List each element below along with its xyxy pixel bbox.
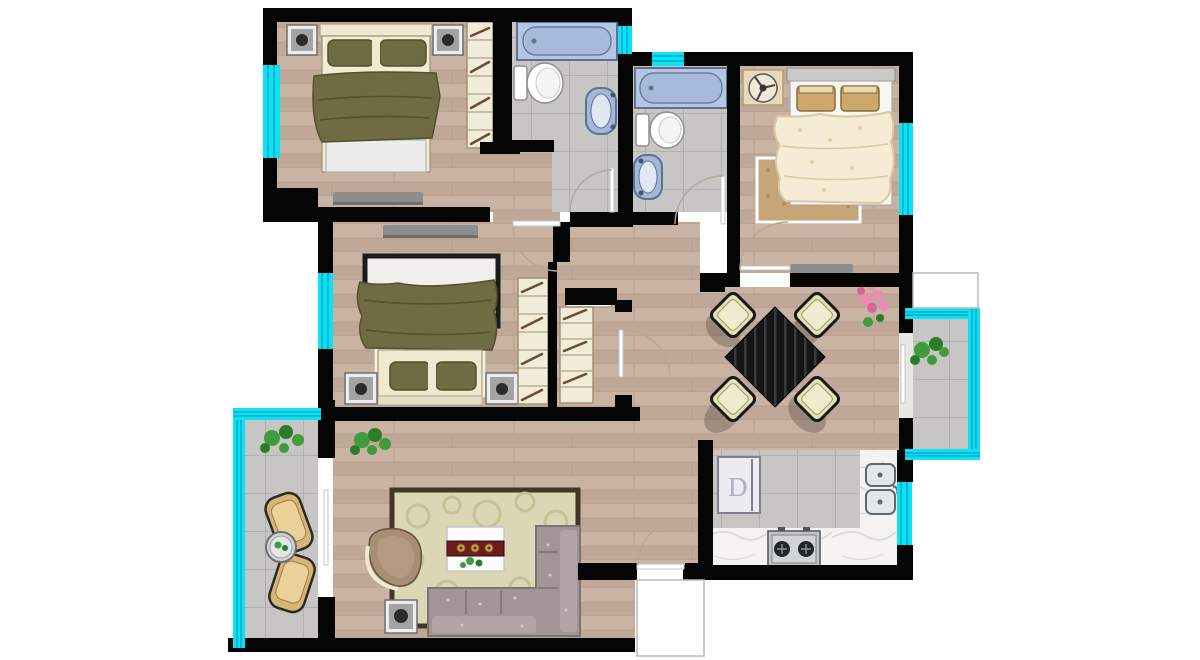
double-bed-icon <box>357 256 498 405</box>
wall-segment <box>633 212 678 225</box>
refrigerator-icon: D <box>718 457 760 513</box>
sink-icon <box>634 155 662 199</box>
wall-segment <box>318 597 335 638</box>
wall-segment <box>553 222 570 262</box>
coffee-table-icon <box>447 527 504 571</box>
exterior-ledge <box>913 273 978 308</box>
wall-segment <box>263 8 277 65</box>
wall-segment <box>740 52 913 66</box>
entry-porch <box>637 580 704 656</box>
wall-segment <box>615 395 632 407</box>
wall-segment <box>683 565 913 580</box>
pillow <box>841 86 879 111</box>
wall-segment <box>228 638 635 652</box>
sink-icon <box>586 88 616 134</box>
wall-segment <box>548 262 557 407</box>
window-icon <box>652 52 684 66</box>
toilet-icon <box>636 112 684 148</box>
side-table-fan-icon <box>743 70 783 105</box>
window-icon <box>318 273 333 349</box>
double-bed-icon <box>774 68 895 205</box>
wall-segment <box>565 288 617 305</box>
wall-segment <box>727 52 740 287</box>
tv-console-edge <box>383 235 478 238</box>
lamp-table-icon <box>385 600 417 633</box>
wall-segment <box>578 563 637 580</box>
wall-segment <box>300 207 490 222</box>
balcony-right-slider <box>901 345 905 403</box>
wardrobe-icon <box>518 278 548 404</box>
wall-segment <box>263 8 632 22</box>
floor-plan: D <box>0 0 1200 660</box>
wall-segment <box>685 563 698 580</box>
wardrobe-icon <box>467 22 493 148</box>
nightstand-icon <box>433 25 463 55</box>
round-table-icon <box>266 532 296 562</box>
floor-plan-canvas: D <box>0 0 1200 660</box>
window-icon <box>263 65 280 158</box>
wall-segment <box>700 273 725 292</box>
pillow <box>797 86 835 111</box>
tv-console-icon <box>790 264 853 273</box>
nightstand-icon <box>345 373 377 404</box>
wardrobe-icon <box>560 307 593 403</box>
wall-segment <box>899 418 913 450</box>
wall-segment <box>618 54 633 227</box>
wall-segment <box>493 22 512 148</box>
wall-segment <box>512 140 554 152</box>
entry-corridor-floor <box>578 420 698 565</box>
bathroom1-entry-floor <box>552 140 618 212</box>
wall-segment <box>618 8 632 26</box>
bathtub-icon <box>635 68 727 108</box>
wall-segment <box>899 273 913 333</box>
nightstand-icon <box>486 373 518 404</box>
hall-strip-floor <box>493 148 560 222</box>
stove-icon <box>768 527 820 567</box>
tv-console-edge <box>333 202 423 205</box>
wall-segment <box>899 52 913 123</box>
double-bed-icon <box>313 24 440 172</box>
window-icon <box>618 26 632 54</box>
window-icon <box>899 123 913 215</box>
wall-segment <box>698 440 713 567</box>
wall-segment <box>318 222 333 273</box>
wall-segment <box>570 212 618 227</box>
toilet-icon <box>514 63 563 103</box>
window-icon <box>897 482 912 545</box>
wall-segment <box>318 349 333 407</box>
wall-segment <box>790 273 913 287</box>
fridge-label: D <box>728 472 748 502</box>
bathtub-icon <box>517 22 617 60</box>
wall-segment <box>615 300 632 312</box>
armchair-icon <box>367 529 421 589</box>
balcony-left-slider <box>324 490 328 565</box>
wall-segment <box>318 407 640 421</box>
nightstand-icon <box>287 25 317 55</box>
wall-segment <box>899 215 913 273</box>
